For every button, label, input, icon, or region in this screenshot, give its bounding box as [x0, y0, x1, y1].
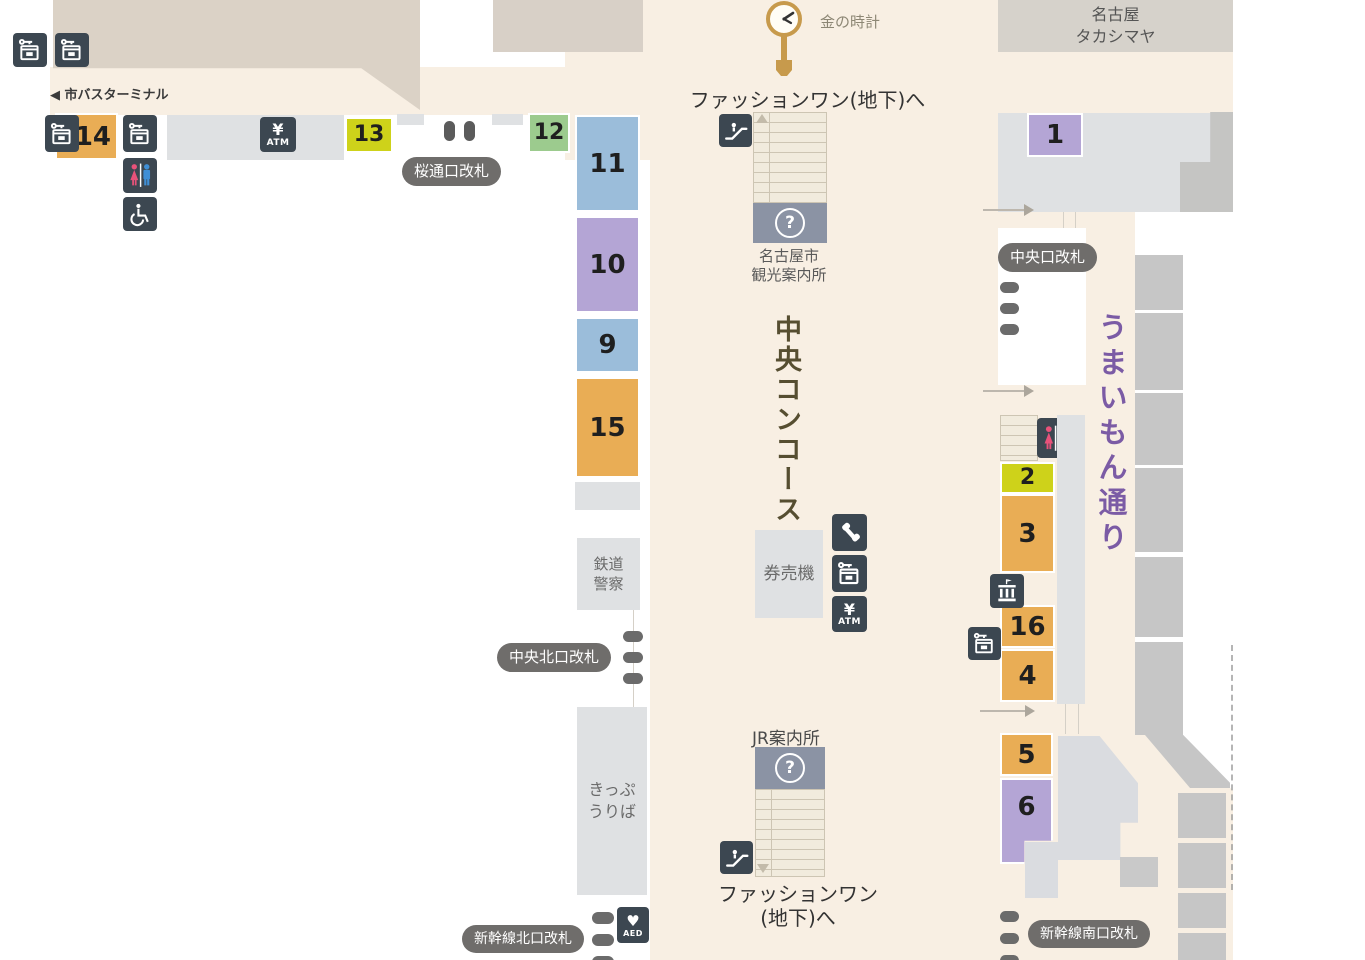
shop-block: [1135, 313, 1183, 390]
takashimaya-label-line2: タカシマヤ: [1075, 26, 1155, 48]
building-block: [1120, 857, 1158, 887]
fashion-one-bottom-line2: (地下)へ: [698, 906, 898, 930]
ticket-gate-pill: [1000, 282, 1019, 293]
shop-block: [1178, 933, 1226, 960]
stairs: [1000, 415, 1038, 461]
spot-box-2: 2: [1000, 462, 1055, 494]
atm-text: ATM: [267, 138, 290, 148]
stairs-rail: [754, 113, 770, 202]
aed-text: AED: [623, 929, 643, 938]
badge-shinkansen-north-gate: 新幹線北口改札: [462, 925, 584, 953]
question-mark-glyph: ?: [775, 753, 805, 783]
spot-box-9: 9: [575, 317, 640, 373]
down-arrow-icon: [757, 864, 769, 873]
shop-block: [1178, 793, 1226, 838]
spot-number-11: 11: [589, 151, 625, 177]
aed-icon: ♥ AED: [617, 907, 649, 943]
spot-number-15: 15: [589, 415, 625, 441]
spot-number-13: 13: [354, 124, 385, 146]
spot-number-9: 9: [598, 332, 616, 358]
umaimon-street-label: うまいもん通り: [1090, 312, 1132, 557]
tourist-info-line1: 名古屋市: [714, 247, 864, 266]
central-concourse-label: 中央コンコース: [766, 315, 805, 525]
spot-box-5: 5: [1000, 733, 1053, 776]
ticket-office-line1: きっぷ: [588, 779, 635, 801]
ticket-gate-pill: [1000, 911, 1019, 922]
ticket-gate-pill: [623, 652, 643, 663]
ticket-gate-pill: [1000, 324, 1019, 335]
jr-info-label: JR案内所: [752, 724, 820, 749]
atm-text: ATM: [838, 617, 861, 627]
spot-number-5: 5: [1017, 742, 1035, 768]
ticket-gate-pill: [444, 121, 455, 141]
ticket-office-line2: うりば: [588, 801, 636, 823]
coin-locker-icon: [55, 33, 89, 67]
spot-box-1: 1: [1027, 113, 1083, 157]
tourist-info-label: 名古屋市 観光案内所: [714, 247, 864, 285]
fashion-one-bottom-line1: ファッションワン: [698, 882, 898, 906]
bus-terminal-label: ◀ 市バスターミナル: [50, 84, 169, 103]
ticket-gate-pill: [1000, 303, 1019, 314]
spot-number-10: 10: [589, 252, 625, 278]
badge-central-north-gate: 中央北口改札: [497, 643, 611, 672]
ticket-gate-pill: [1000, 933, 1019, 944]
gold-clock-icon: [762, 0, 806, 78]
atm-yen-glyph: ¥: [272, 123, 283, 137]
flow-arrow-right: [980, 710, 1026, 712]
shop-block: [1135, 557, 1183, 637]
escalator-icon: [719, 114, 752, 147]
railway-police-block: 鉄道 警察: [577, 538, 640, 610]
coin-locker-icon: [45, 115, 79, 152]
wall-block: [397, 114, 424, 125]
spot-number-14: 14: [75, 124, 111, 150]
ticket-gate-pill: [592, 956, 614, 960]
public-phone-icon: [832, 514, 867, 551]
ticket-office-block: きっぷ うりば: [577, 707, 647, 895]
atm-yen-glyph: ¥: [844, 603, 855, 617]
spot-number-3: 3: [1018, 521, 1036, 547]
stairs-to-basement: [753, 112, 827, 203]
shop-block: [1135, 255, 1183, 310]
shop-block: [1135, 642, 1183, 735]
atm-icon: ¥ ATM: [260, 117, 296, 152]
coin-locker-icon: [832, 555, 867, 592]
ticket-machines-label: 券売機: [764, 563, 815, 586]
shop-block: [1135, 393, 1183, 465]
coin-locker-icon: [123, 115, 157, 152]
spot-number-12: 12: [534, 122, 565, 144]
ticket-gate-pill: [1000, 955, 1019, 960]
ticket-gate-pill: [623, 631, 643, 642]
aed-heart-glyph: ♥: [626, 915, 639, 929]
station-floor-map: 名古屋 タカシマヤ 金の時計 ◀ 市バスターミナル 14: [0, 0, 1365, 960]
tourist-information-icon: ?: [753, 203, 827, 243]
fashion-one-bottom-label: ファッションワン (地下)へ: [698, 882, 898, 930]
spot-number-6: 6: [1017, 794, 1035, 820]
ticket-gate-pill: [592, 912, 614, 924]
ticket-machines-block: 券売機: [755, 530, 823, 618]
restroom-icon: [123, 158, 157, 193]
corridor-line: [1078, 704, 1079, 734]
building-block: [493, 0, 643, 52]
flow-arrow-right: [983, 209, 1025, 211]
takashimaya-label-line1: 名古屋: [1091, 4, 1139, 26]
public-building-icon: [990, 574, 1024, 608]
wheelchair-icon: [123, 197, 157, 231]
wall-block: [575, 482, 640, 510]
escalator-icon: [720, 841, 753, 874]
spot-box-10: 10: [575, 216, 640, 313]
ticket-gate-pill: [464, 121, 475, 141]
coin-locker-icon: [968, 627, 1001, 660]
wall-block: [492, 114, 523, 125]
building-block: [1025, 842, 1058, 898]
takashimaya-block: 名古屋 タカシマヤ: [998, 0, 1233, 52]
shop-block: [1135, 468, 1183, 552]
spot-box-16: 16: [1000, 605, 1055, 648]
spot-box-15: 15: [575, 377, 640, 478]
wall-block: [167, 115, 344, 160]
boundary-dashed-line: [1231, 645, 1233, 890]
badge-sakuradori-gate: 桜通口改札: [402, 157, 501, 186]
ticket-gate-pill: [623, 673, 643, 684]
flow-arrow-right: [983, 390, 1025, 392]
badge-shinkansen-south-gate: 新幹線南口改札: [1028, 920, 1150, 948]
railway-police-line2: 警察: [593, 574, 623, 594]
spot-box-4: 4: [1000, 649, 1055, 702]
fashion-one-top-label: ファッションワン(地下)へ: [660, 84, 955, 113]
jr-information-icon: ?: [755, 747, 825, 789]
spot-number-16: 16: [1009, 614, 1045, 640]
spot-box-12: 12: [528, 113, 570, 153]
coin-locker-icon: [13, 33, 47, 67]
badge-central-gate: 中央口改札: [998, 243, 1097, 272]
spot-box-3: 3: [1000, 494, 1055, 573]
tourist-info-line2: 観光案内所: [714, 266, 864, 285]
platform-wall: [1057, 415, 1085, 704]
spot-number-4: 4: [1018, 663, 1036, 689]
ticket-gate-pill: [592, 934, 614, 946]
spot-number-2: 2: [1020, 467, 1035, 489]
spot-box-13: 13: [345, 117, 393, 153]
up-arrow-icon: [756, 114, 768, 123]
shop-block: [1178, 893, 1226, 928]
atm-icon: ¥ ATM: [832, 596, 867, 632]
railway-police-line1: 鉄道: [593, 554, 623, 574]
corridor-line: [1065, 704, 1066, 734]
shop-block: [1178, 843, 1226, 888]
gold-clock-label: 金の時計: [820, 11, 880, 32]
spot-box-11: 11: [575, 115, 640, 212]
spot-number-1: 1: [1046, 122, 1064, 148]
question-mark-glyph: ?: [775, 208, 805, 238]
